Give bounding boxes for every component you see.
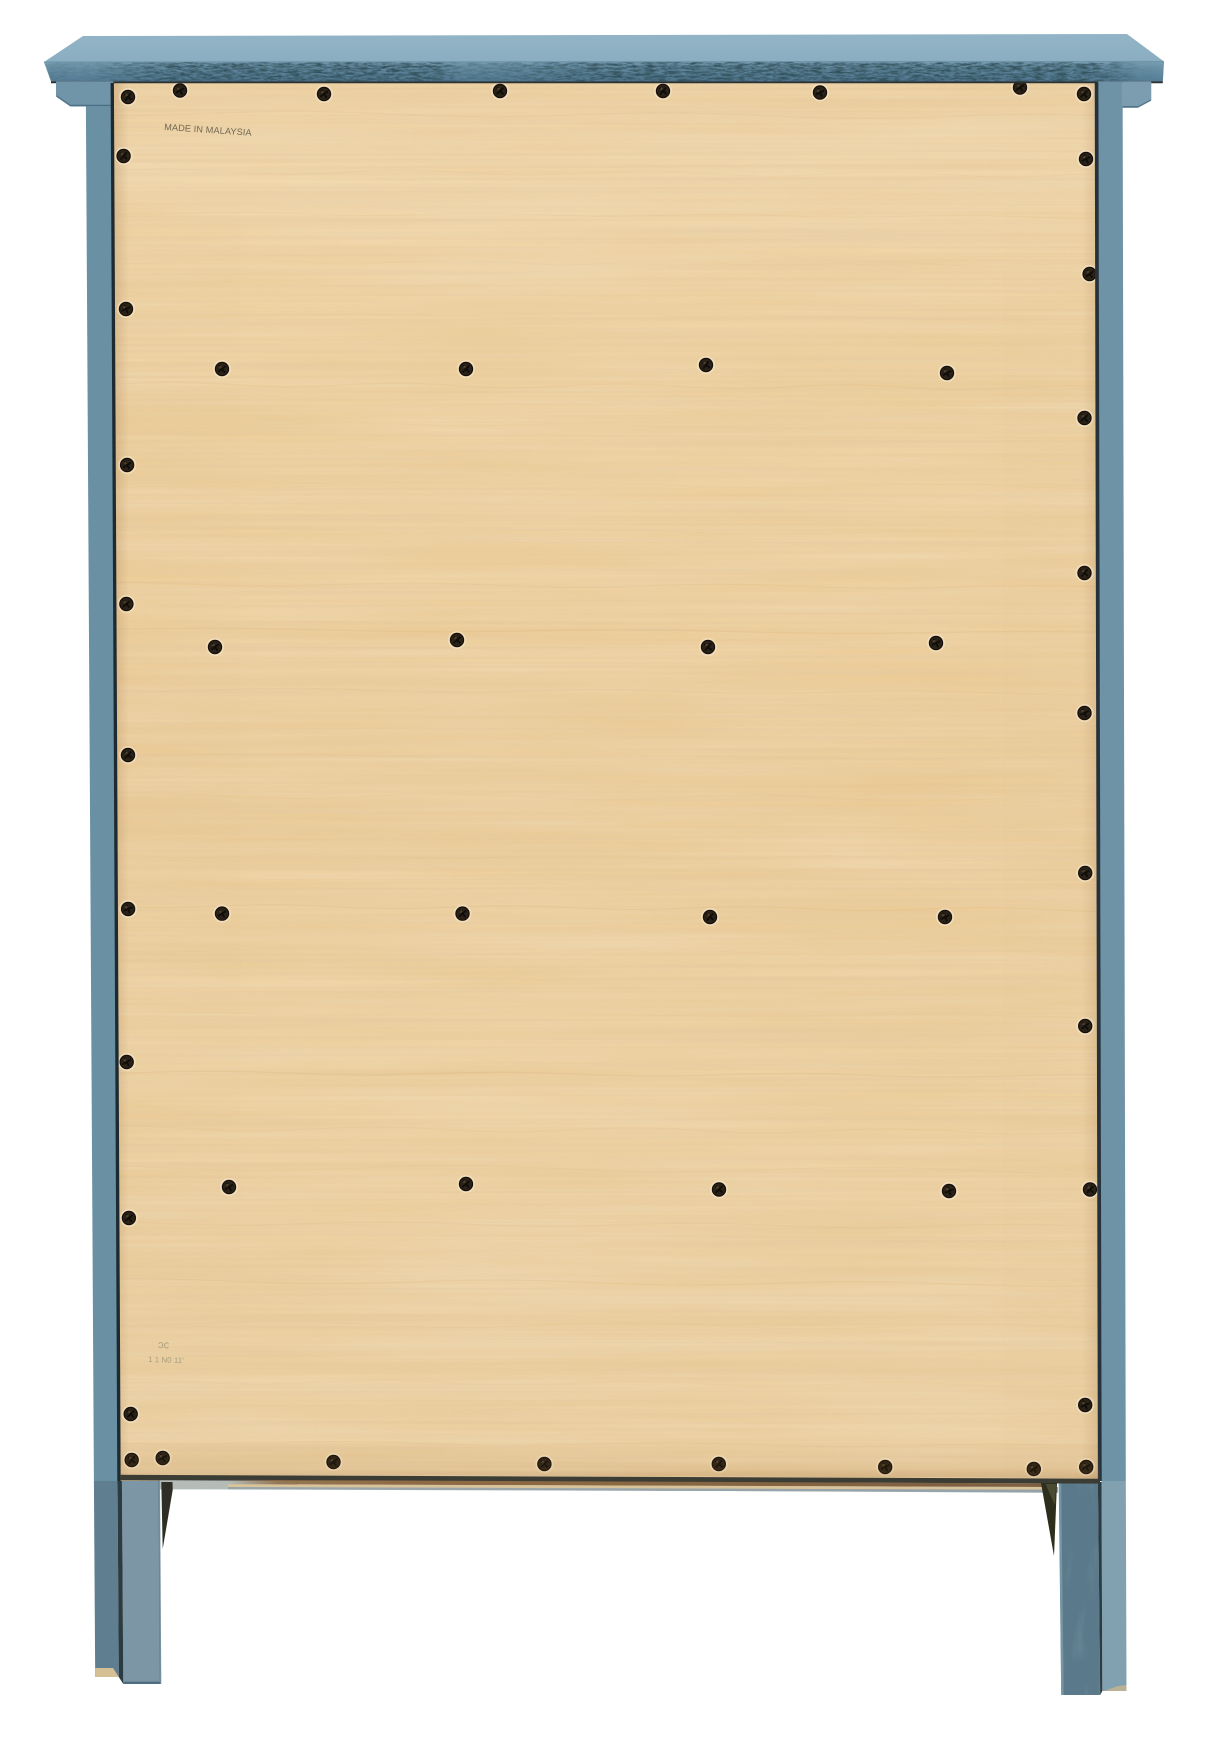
svg-text:ɔc: ɔc	[158, 1339, 170, 1351]
svg-text:1 1 N0 11': 1 1 N0 11'	[148, 1355, 184, 1365]
